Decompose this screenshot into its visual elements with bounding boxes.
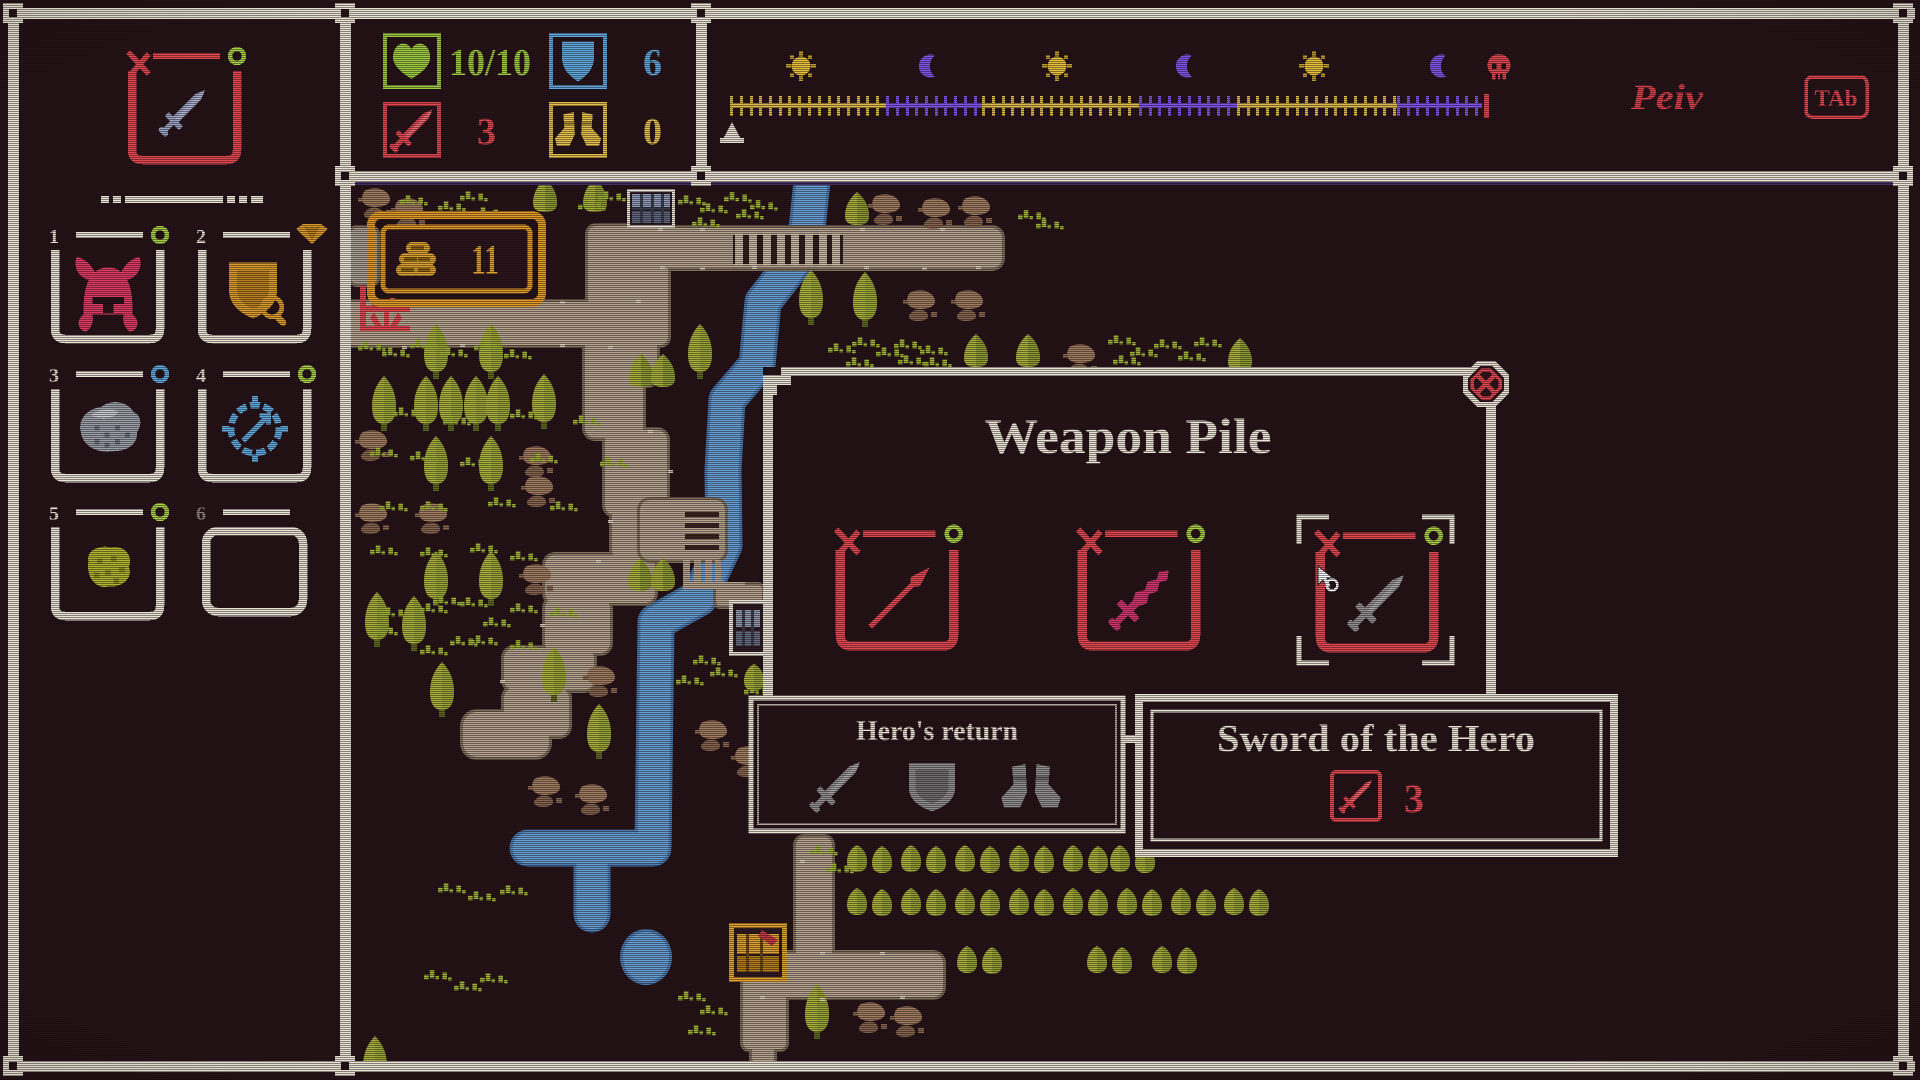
svg-text:Hero's return: Hero's return xyxy=(856,715,1018,747)
svg-text:6: 6 xyxy=(196,503,206,525)
svg-text:3: 3 xyxy=(477,111,496,153)
svg-text:Weapon Pile: Weapon Pile xyxy=(985,408,1272,464)
svg-text:2: 2 xyxy=(196,226,206,248)
svg-text:3: 3 xyxy=(49,365,59,387)
svg-text:3: 3 xyxy=(1404,776,1424,821)
svg-text:Peiv: Peiv xyxy=(1630,77,1704,117)
svg-text:Sword of the Hero: Sword of the Hero xyxy=(1217,718,1535,760)
svg-text:1: 1 xyxy=(49,226,59,248)
svg-text:11: 11 xyxy=(471,238,499,284)
svg-text:0: 0 xyxy=(643,111,662,153)
svg-text:5: 5 xyxy=(49,503,59,525)
svg-text:10/10: 10/10 xyxy=(449,42,531,84)
svg-text:4: 4 xyxy=(196,365,206,387)
svg-text:6: 6 xyxy=(643,42,662,84)
svg-text:TAb: TAb xyxy=(1814,86,1857,111)
